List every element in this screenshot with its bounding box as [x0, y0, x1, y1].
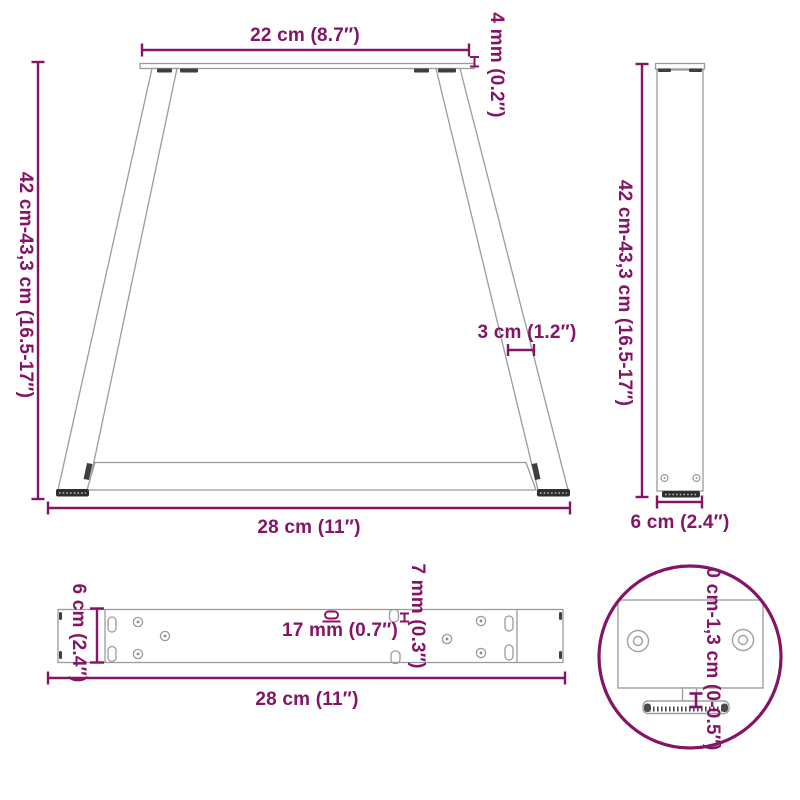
- diagram-linework: [0, 0, 800, 800]
- top-slot-width-label: 7 mm (0.3″): [407, 563, 427, 668]
- side-height-label: 42 cm-43,3 cm (16.5-17″): [614, 180, 634, 406]
- top-slot-length-label: 17 mm (0.7″): [282, 621, 398, 641]
- dim-side-height-line: [636, 64, 649, 497]
- top-depth-label: 6 cm (2.4″): [68, 584, 88, 683]
- front-view-drawing: [58, 64, 568, 491]
- front-height-label: 42 cm-43,3 cm (16.5-17″): [15, 172, 35, 398]
- dim-top-width-line: [48, 672, 565, 685]
- front-leg-width-label: 3 cm (1.2″): [478, 323, 577, 343]
- front-top-width-label: 22 cm (8.7″): [250, 26, 360, 46]
- dim-front-bottom-width-line: [48, 502, 570, 515]
- dimension-diagram: 22 cm (8.7″) 4 mm (0.2″) 42 cm-43,3 cm (…: [0, 0, 800, 800]
- side-depth-label: 6 cm (2.4″): [631, 513, 730, 533]
- top-width-label: 28 cm (11″): [255, 690, 358, 710]
- front-bottom-width-label: 28 cm (11″): [257, 518, 360, 538]
- detail-view-drawing: [618, 600, 763, 714]
- front-plate-thickness-label: 4 mm (0.2″): [486, 12, 506, 117]
- detail-adjustable-range-label: 0 cm-1,3 cm (0-0.5″): [702, 567, 722, 750]
- side-view-drawing: [656, 64, 705, 492]
